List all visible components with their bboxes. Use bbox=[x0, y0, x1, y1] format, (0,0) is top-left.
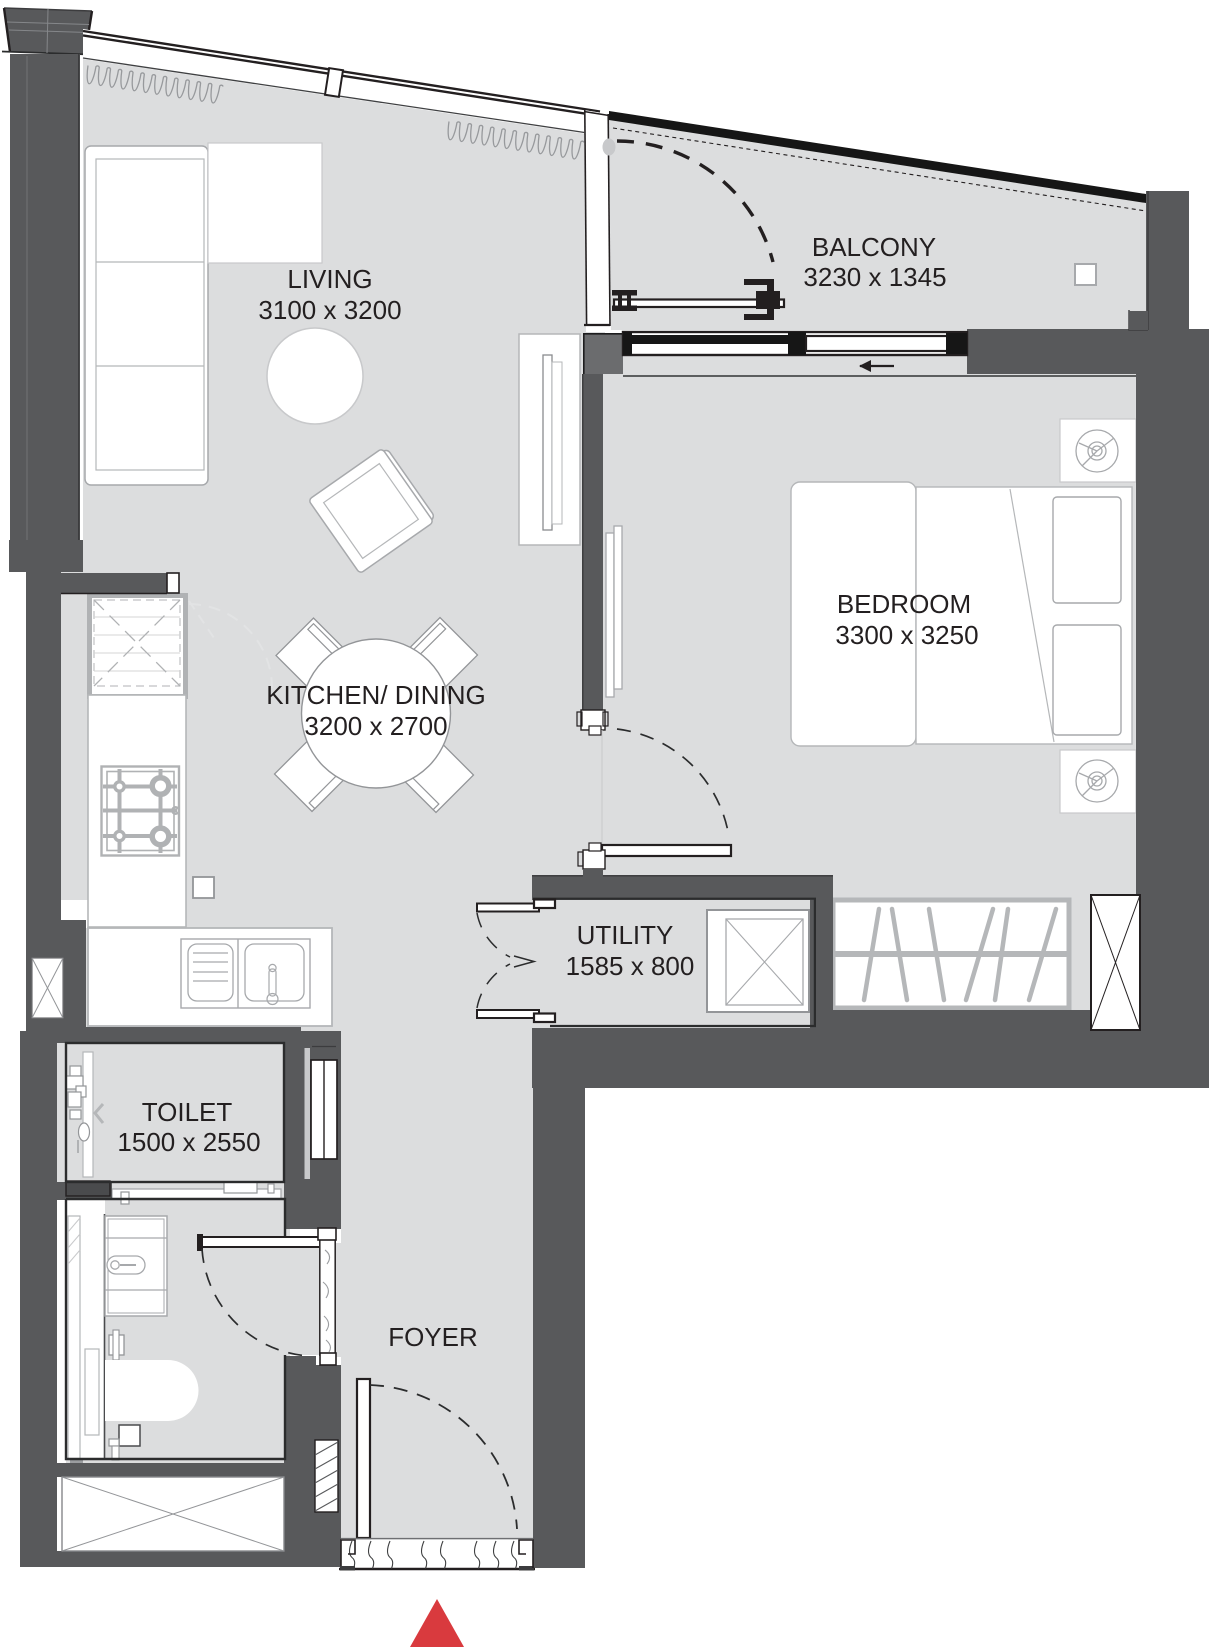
svg-text:TOILET: TOILET bbox=[142, 1097, 233, 1127]
svg-text:UTILITY: UTILITY bbox=[577, 920, 674, 950]
svg-text:BALCONY: BALCONY bbox=[812, 232, 936, 262]
svg-text:LIVING: LIVING bbox=[287, 264, 372, 294]
svg-text:1500 x 2550: 1500 x 2550 bbox=[117, 1127, 260, 1157]
svg-text:3200 x 2700: 3200 x 2700 bbox=[304, 711, 447, 741]
svg-text:1585 x 800: 1585 x 800 bbox=[566, 951, 695, 981]
svg-text:3300 x 3250: 3300 x 3250 bbox=[835, 620, 978, 650]
svg-text:3100 x 3200: 3100 x 3200 bbox=[258, 295, 401, 325]
svg-text:KITCHEN/ DINING: KITCHEN/ DINING bbox=[266, 680, 486, 710]
svg-text:BEDROOM: BEDROOM bbox=[837, 589, 971, 619]
svg-text:3230 x 1345: 3230 x 1345 bbox=[803, 262, 946, 292]
svg-text:FOYER: FOYER bbox=[388, 1322, 478, 1352]
